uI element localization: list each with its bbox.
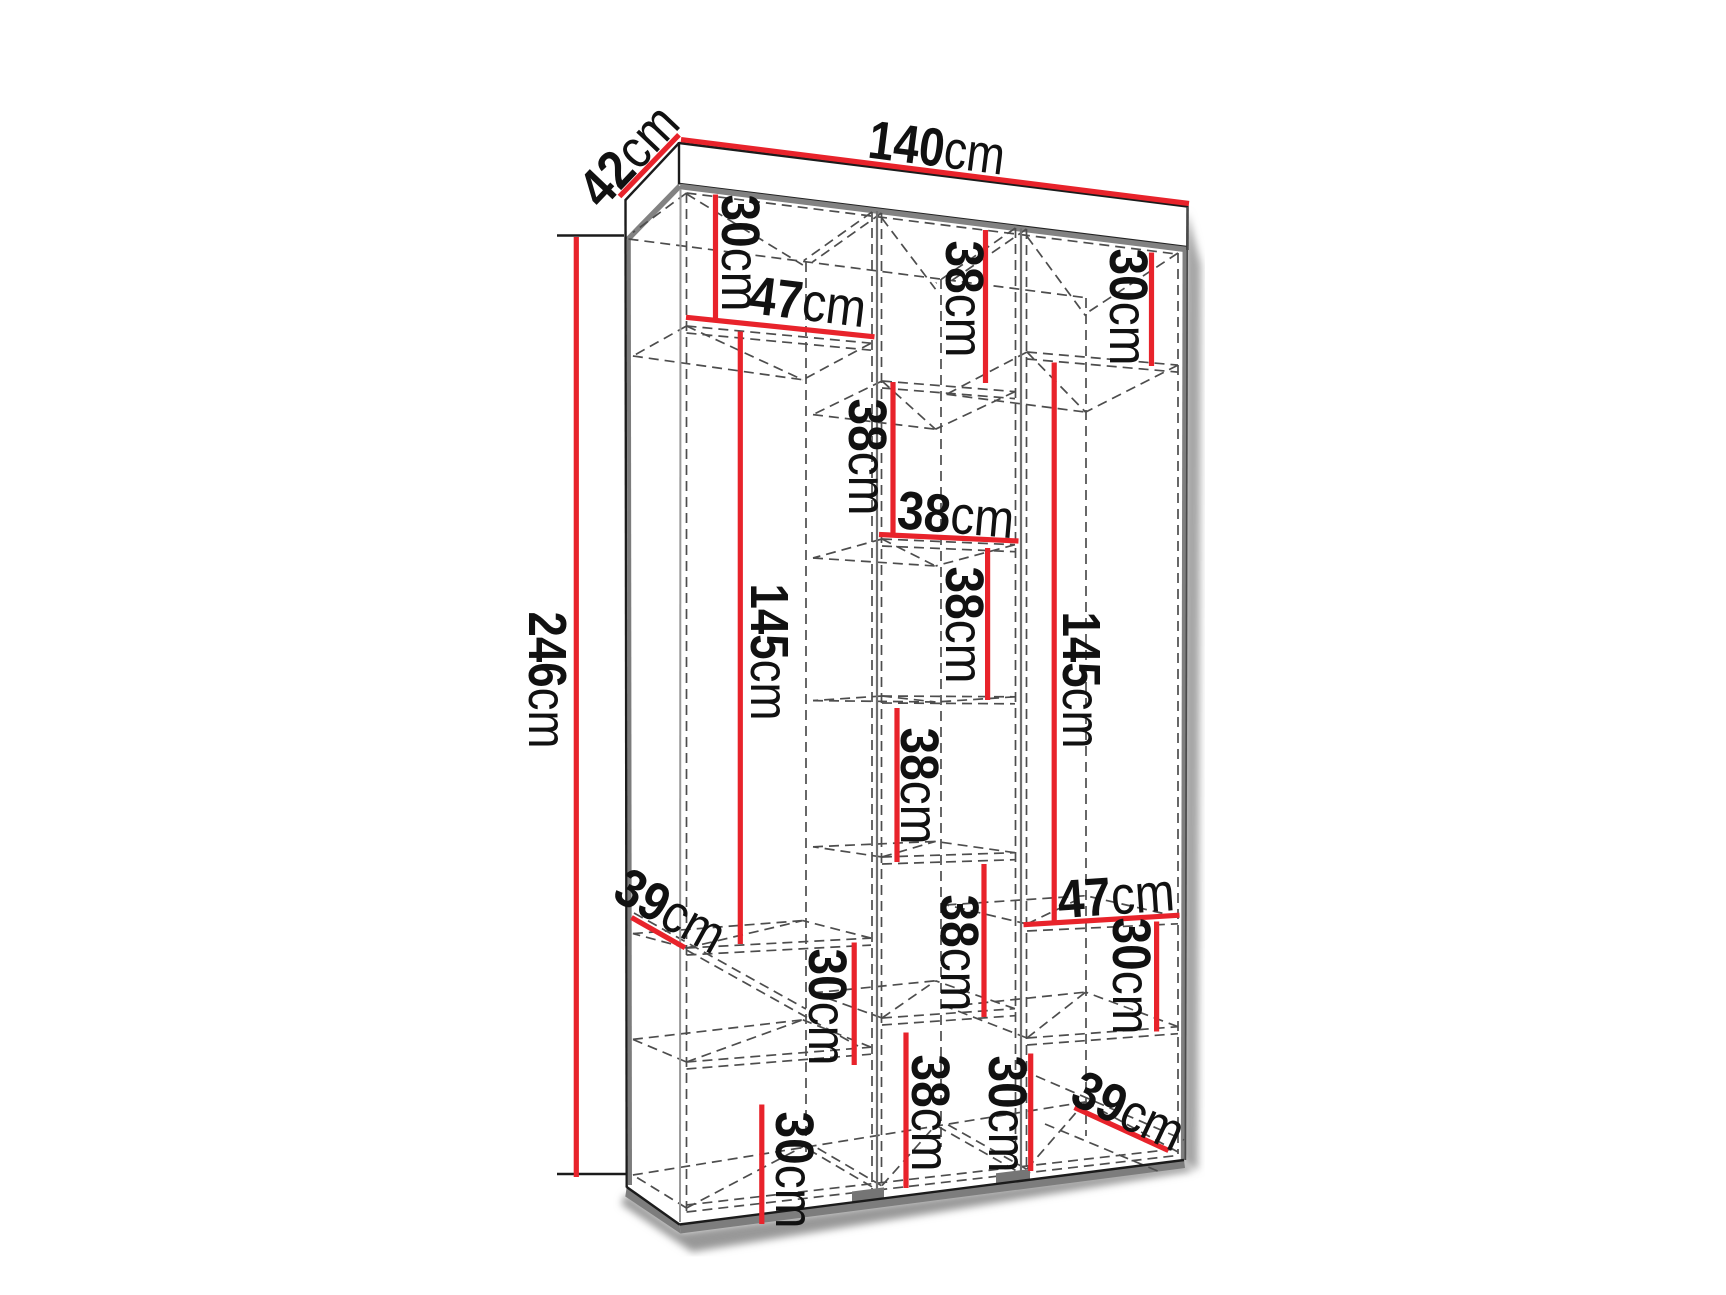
- svg-text:38cm: 38cm: [889, 728, 949, 845]
- svg-text:145cm: 145cm: [1051, 612, 1111, 749]
- svg-text:246cm: 246cm: [517, 612, 577, 749]
- svg-text:38cm: 38cm: [929, 895, 989, 1012]
- svg-text:30cm: 30cm: [764, 1112, 824, 1229]
- svg-text:38cm: 38cm: [934, 241, 994, 358]
- svg-text:145cm: 145cm: [739, 584, 799, 721]
- svg-text:38cm: 38cm: [900, 1055, 960, 1172]
- svg-text:38cm: 38cm: [837, 399, 897, 516]
- svg-text:30cm: 30cm: [797, 949, 857, 1066]
- svg-text:30cm: 30cm: [1101, 918, 1161, 1035]
- svg-text:38cm: 38cm: [895, 480, 1017, 550]
- svg-text:47cm: 47cm: [1056, 862, 1177, 930]
- svg-text:30cm: 30cm: [977, 1056, 1037, 1173]
- svg-text:38cm: 38cm: [934, 567, 994, 684]
- svg-text:30cm: 30cm: [1098, 249, 1158, 366]
